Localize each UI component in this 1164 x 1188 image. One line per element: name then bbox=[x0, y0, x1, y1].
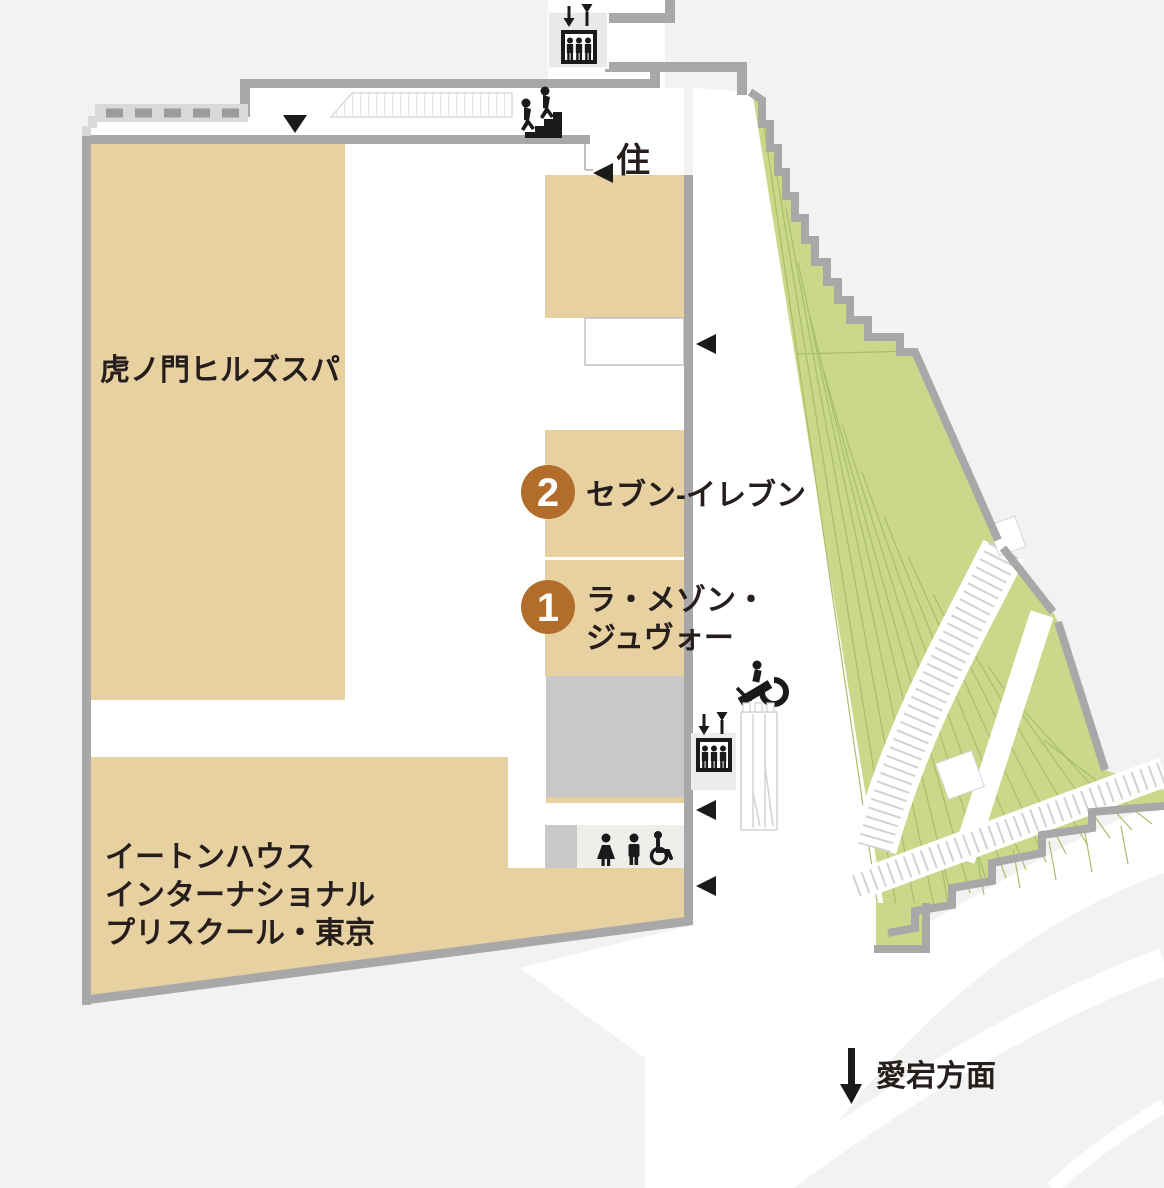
tenant-area-north-room[interactable] bbox=[545, 175, 684, 318]
label-la-maison-line1: ラ・メゾン・ bbox=[586, 584, 766, 617]
label-preschool-line1: イートンハウス bbox=[105, 841, 315, 874]
marker-1[interactable]: 1 bbox=[521, 580, 575, 634]
service-core bbox=[546, 676, 684, 797]
label-preschool-line3: プリスクール・東京 bbox=[105, 916, 375, 950]
label-residence: 住 bbox=[616, 142, 650, 180]
ramp-drawing bbox=[331, 93, 512, 117]
marker-2-number: 2 bbox=[537, 471, 559, 515]
restroom-service-box bbox=[545, 825, 577, 868]
label-spa: 虎ノ門ヒルズスパ bbox=[100, 353, 340, 387]
marker-2[interactable]: 2 bbox=[521, 465, 575, 519]
floor-map: 2 セブン-イレブン 1 ラ・メゾン・ ジュヴォー 虎ノ門ヒルズスパ イートンハ… bbox=[0, 0, 1164, 1188]
back-room bbox=[585, 318, 684, 365]
label-la-maison-line2: ジュヴォー bbox=[586, 621, 734, 655]
label-direction-atago: 愛宕方面 bbox=[876, 1059, 996, 1093]
service-core-edge bbox=[546, 797, 684, 803]
marker-1-number: 1 bbox=[537, 586, 559, 630]
tenant-area-spa[interactable] bbox=[91, 144, 345, 700]
label-seven-eleven: セブン-イレブン bbox=[586, 478, 806, 512]
escalator-shaft-drawing bbox=[741, 703, 777, 830]
label-preschool-line2: インターナショナル bbox=[105, 879, 375, 912]
